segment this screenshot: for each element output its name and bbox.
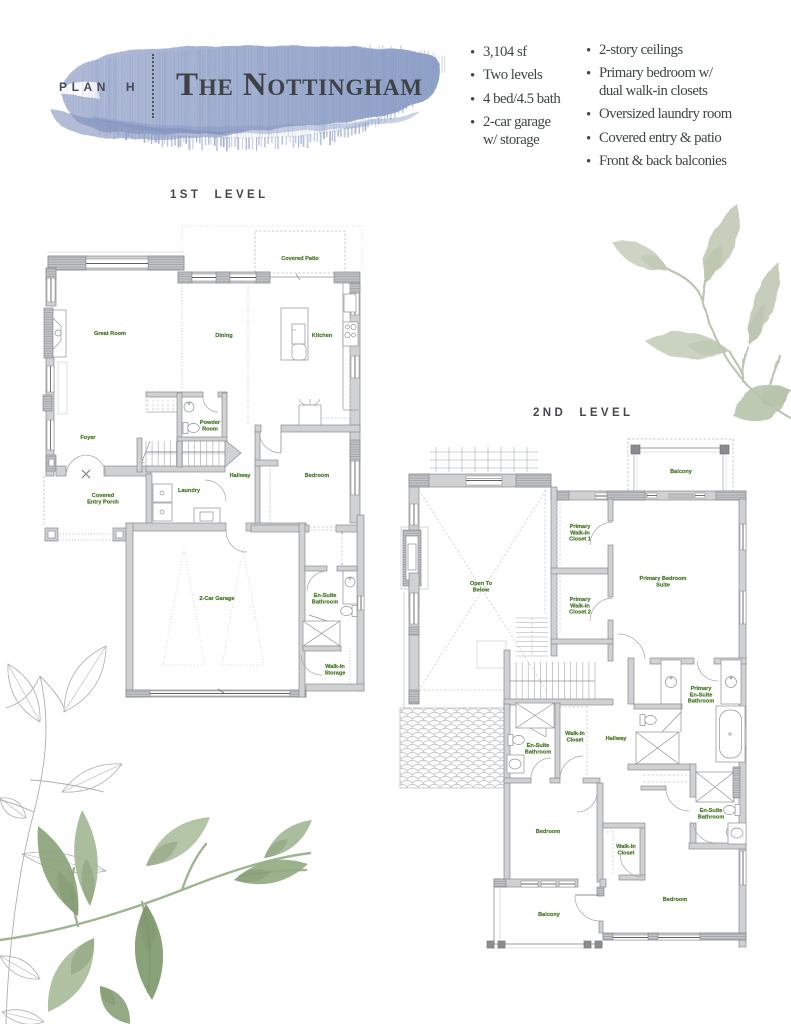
svg-text:Walk-InCloset: Walk-InCloset — [565, 731, 585, 743]
svg-text:Covered Patio: Covered Patio — [281, 256, 319, 262]
svg-text:Bedroom: Bedroom — [305, 473, 330, 479]
svg-text:Balcony: Balcony — [670, 469, 693, 475]
svg-text:PrimaryWalk-InCloset 1: PrimaryWalk-InCloset 1 — [569, 524, 591, 543]
svg-text:Laundry: Laundry — [178, 488, 201, 494]
svg-text:Hallway: Hallway — [230, 473, 252, 479]
svg-text:Great Room: Great Room — [94, 331, 126, 337]
svg-text:Hallway: Hallway — [606, 736, 628, 742]
svg-text:Open ToBelow: Open ToBelow — [470, 581, 493, 593]
svg-text:Walk-InStorage: Walk-InStorage — [325, 664, 346, 676]
svg-text:Bedroom: Bedroom — [536, 829, 561, 835]
svg-text:CoveredEntry Porch: CoveredEntry Porch — [87, 493, 119, 505]
svg-text:Kitchen: Kitchen — [312, 333, 333, 339]
svg-text:PrimaryEn-SuiteBathroom: PrimaryEn-SuiteBathroom — [688, 686, 714, 705]
svg-text:PrimaryWalk-InCloset 2: PrimaryWalk-InCloset 2 — [569, 597, 591, 616]
svg-text:En-SuiteBathroom: En-SuiteBathroom — [312, 593, 338, 605]
svg-text:2-Car Garage: 2-Car Garage — [199, 596, 234, 602]
svg-text:Foyer: Foyer — [80, 435, 96, 441]
svg-text:Balcony: Balcony — [538, 912, 561, 918]
svg-text:En-SuiteBathroom: En-SuiteBathroom — [698, 808, 724, 820]
svg-text:Walk-InCloset: Walk-InCloset — [616, 844, 636, 856]
svg-text:Primary BedroomSuite: Primary BedroomSuite — [640, 576, 687, 588]
svg-text:Dining: Dining — [215, 333, 233, 339]
svg-text:PowderRoom: PowderRoom — [200, 420, 221, 432]
svg-text:En-SuiteBathroom: En-SuiteBathroom — [525, 743, 551, 755]
svg-text:Bedroom: Bedroom — [663, 897, 688, 903]
